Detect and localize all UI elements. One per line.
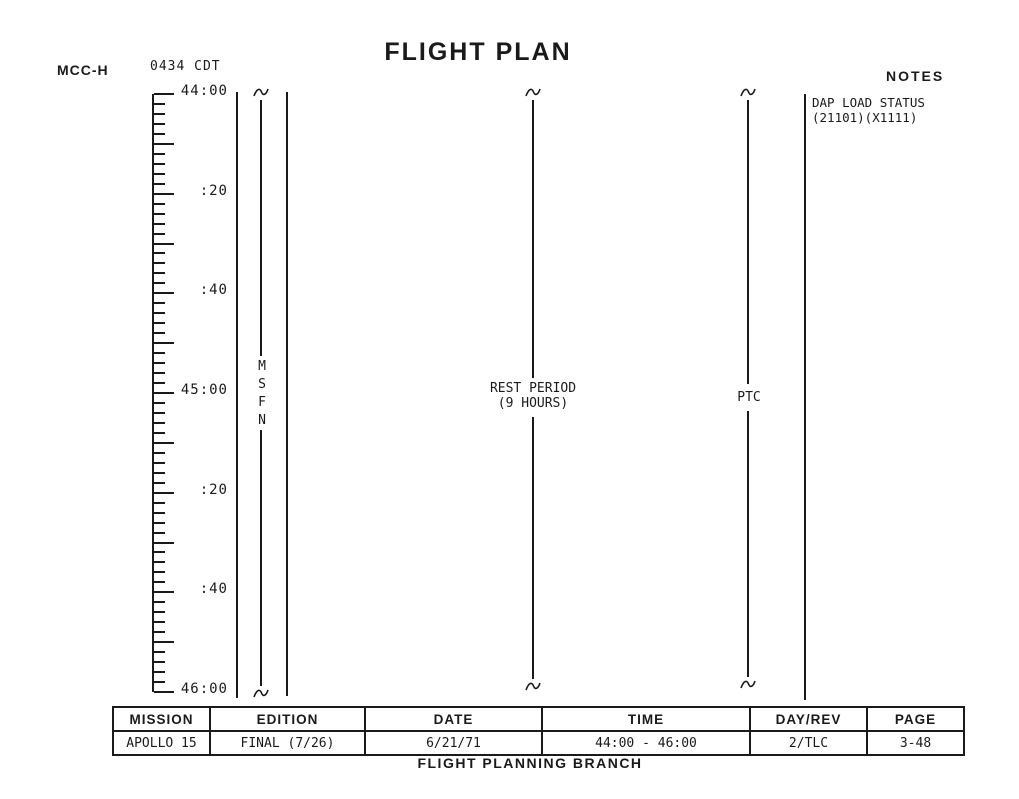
timeline-label: 46:00 (148, 681, 228, 697)
rest-period-line-lower (532, 417, 534, 679)
timeline-label: :40 (148, 581, 228, 597)
timeline-label: :20 (148, 183, 228, 199)
table-header-page: PAGE (868, 708, 963, 730)
table-cell-day-rev: 2/TLC (751, 732, 868, 754)
msfn-line-upper (260, 100, 262, 356)
ptc-line-upper (747, 100, 749, 384)
flight-plan-page: FLIGHT PLAN MCC-H 0434 CDT NOTES 44:00:2… (0, 0, 1019, 799)
table-header-mission: MISSION (114, 708, 211, 730)
msfn-letter: F (248, 394, 276, 412)
table-value-row: APOLLO 15 FINAL (7/26) 6/21/71 44:00 - 4… (114, 732, 963, 754)
local-time-label: 0434 CDT (150, 59, 221, 74)
table-cell-page: 3-48 (868, 732, 963, 754)
msfn-band-left-line (236, 92, 238, 698)
ptc-label: PTC (722, 390, 776, 405)
squiggle-break-icon (740, 679, 756, 690)
notes-bracket-line (804, 94, 806, 700)
rest-period-line-upper (532, 100, 534, 378)
timeline-labels: 44:00:20:4045:00:20:4046:00 (148, 94, 228, 692)
msfn-letter: M (248, 358, 276, 376)
ptc-line-lower (747, 411, 749, 677)
data-table: MISSION EDITION DATE TIME DAY/REV PAGE A… (112, 706, 965, 756)
timeline-label: 44:00 (148, 83, 228, 99)
msfn-band-right-line (286, 92, 288, 696)
squiggle-break-icon (525, 87, 541, 98)
timeline-label: :20 (148, 482, 228, 498)
msfn-line-lower (260, 430, 262, 686)
table-cell-mission: APOLLO 15 (114, 732, 211, 754)
squiggle-break-icon (253, 87, 269, 98)
dap-load-status-note: DAP LOAD STATUS (21101)(X1111) (812, 95, 925, 125)
timeline-label: 45:00 (148, 382, 228, 398)
table-cell-time: 44:00 - 46:00 (543, 732, 751, 754)
table-header-date: DATE (366, 708, 543, 730)
msfn-letter: S (248, 376, 276, 394)
footer-branch-label: FLIGHT PLANNING BRANCH (417, 755, 642, 771)
squiggle-break-icon (253, 688, 269, 699)
msfn-label: M S F N (248, 358, 276, 430)
table-header-edition: EDITION (211, 708, 366, 730)
timeline-label: :40 (148, 282, 228, 298)
rest-period-label: REST PERIOD (9 HOURS) (458, 381, 608, 411)
table-header-day-rev: DAY/REV (751, 708, 868, 730)
table-header-time: TIME (543, 708, 751, 730)
table-header-row: MISSION EDITION DATE TIME DAY/REV PAGE (114, 708, 963, 732)
page-title: FLIGHT PLAN (384, 38, 571, 67)
msfn-letter: N (248, 412, 276, 430)
squiggle-break-icon (740, 87, 756, 98)
squiggle-break-icon (525, 681, 541, 692)
notes-heading: NOTES (886, 68, 944, 84)
station-label: MCC-H (57, 62, 109, 78)
table-cell-edition: FINAL (7/26) (211, 732, 366, 754)
table-cell-date: 6/21/71 (366, 732, 543, 754)
